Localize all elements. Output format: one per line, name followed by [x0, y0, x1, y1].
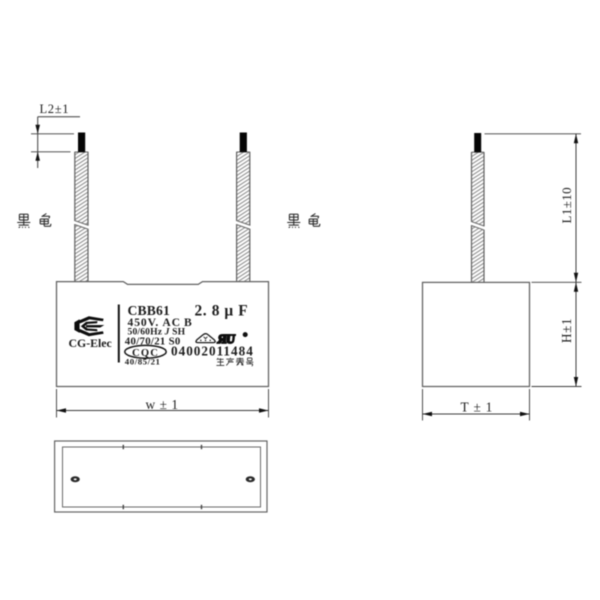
svg-text:H±1: H±1	[559, 318, 574, 343]
svg-text:L2±1: L2±1	[40, 102, 70, 116]
svg-text:w±1: w±1	[146, 397, 183, 412]
svg-text:T±1: T±1	[461, 400, 498, 415]
svg-text:40/85/21: 40/85/21	[125, 357, 161, 367]
svg-text:04002011484: 04002011484	[171, 344, 254, 359]
svg-text:L1±10: L1±10	[559, 187, 574, 224]
svg-text:CG-Elec: CG-Elec	[69, 336, 112, 350]
svg-text:2. 8 μ F: 2. 8 μ F	[195, 303, 249, 320]
